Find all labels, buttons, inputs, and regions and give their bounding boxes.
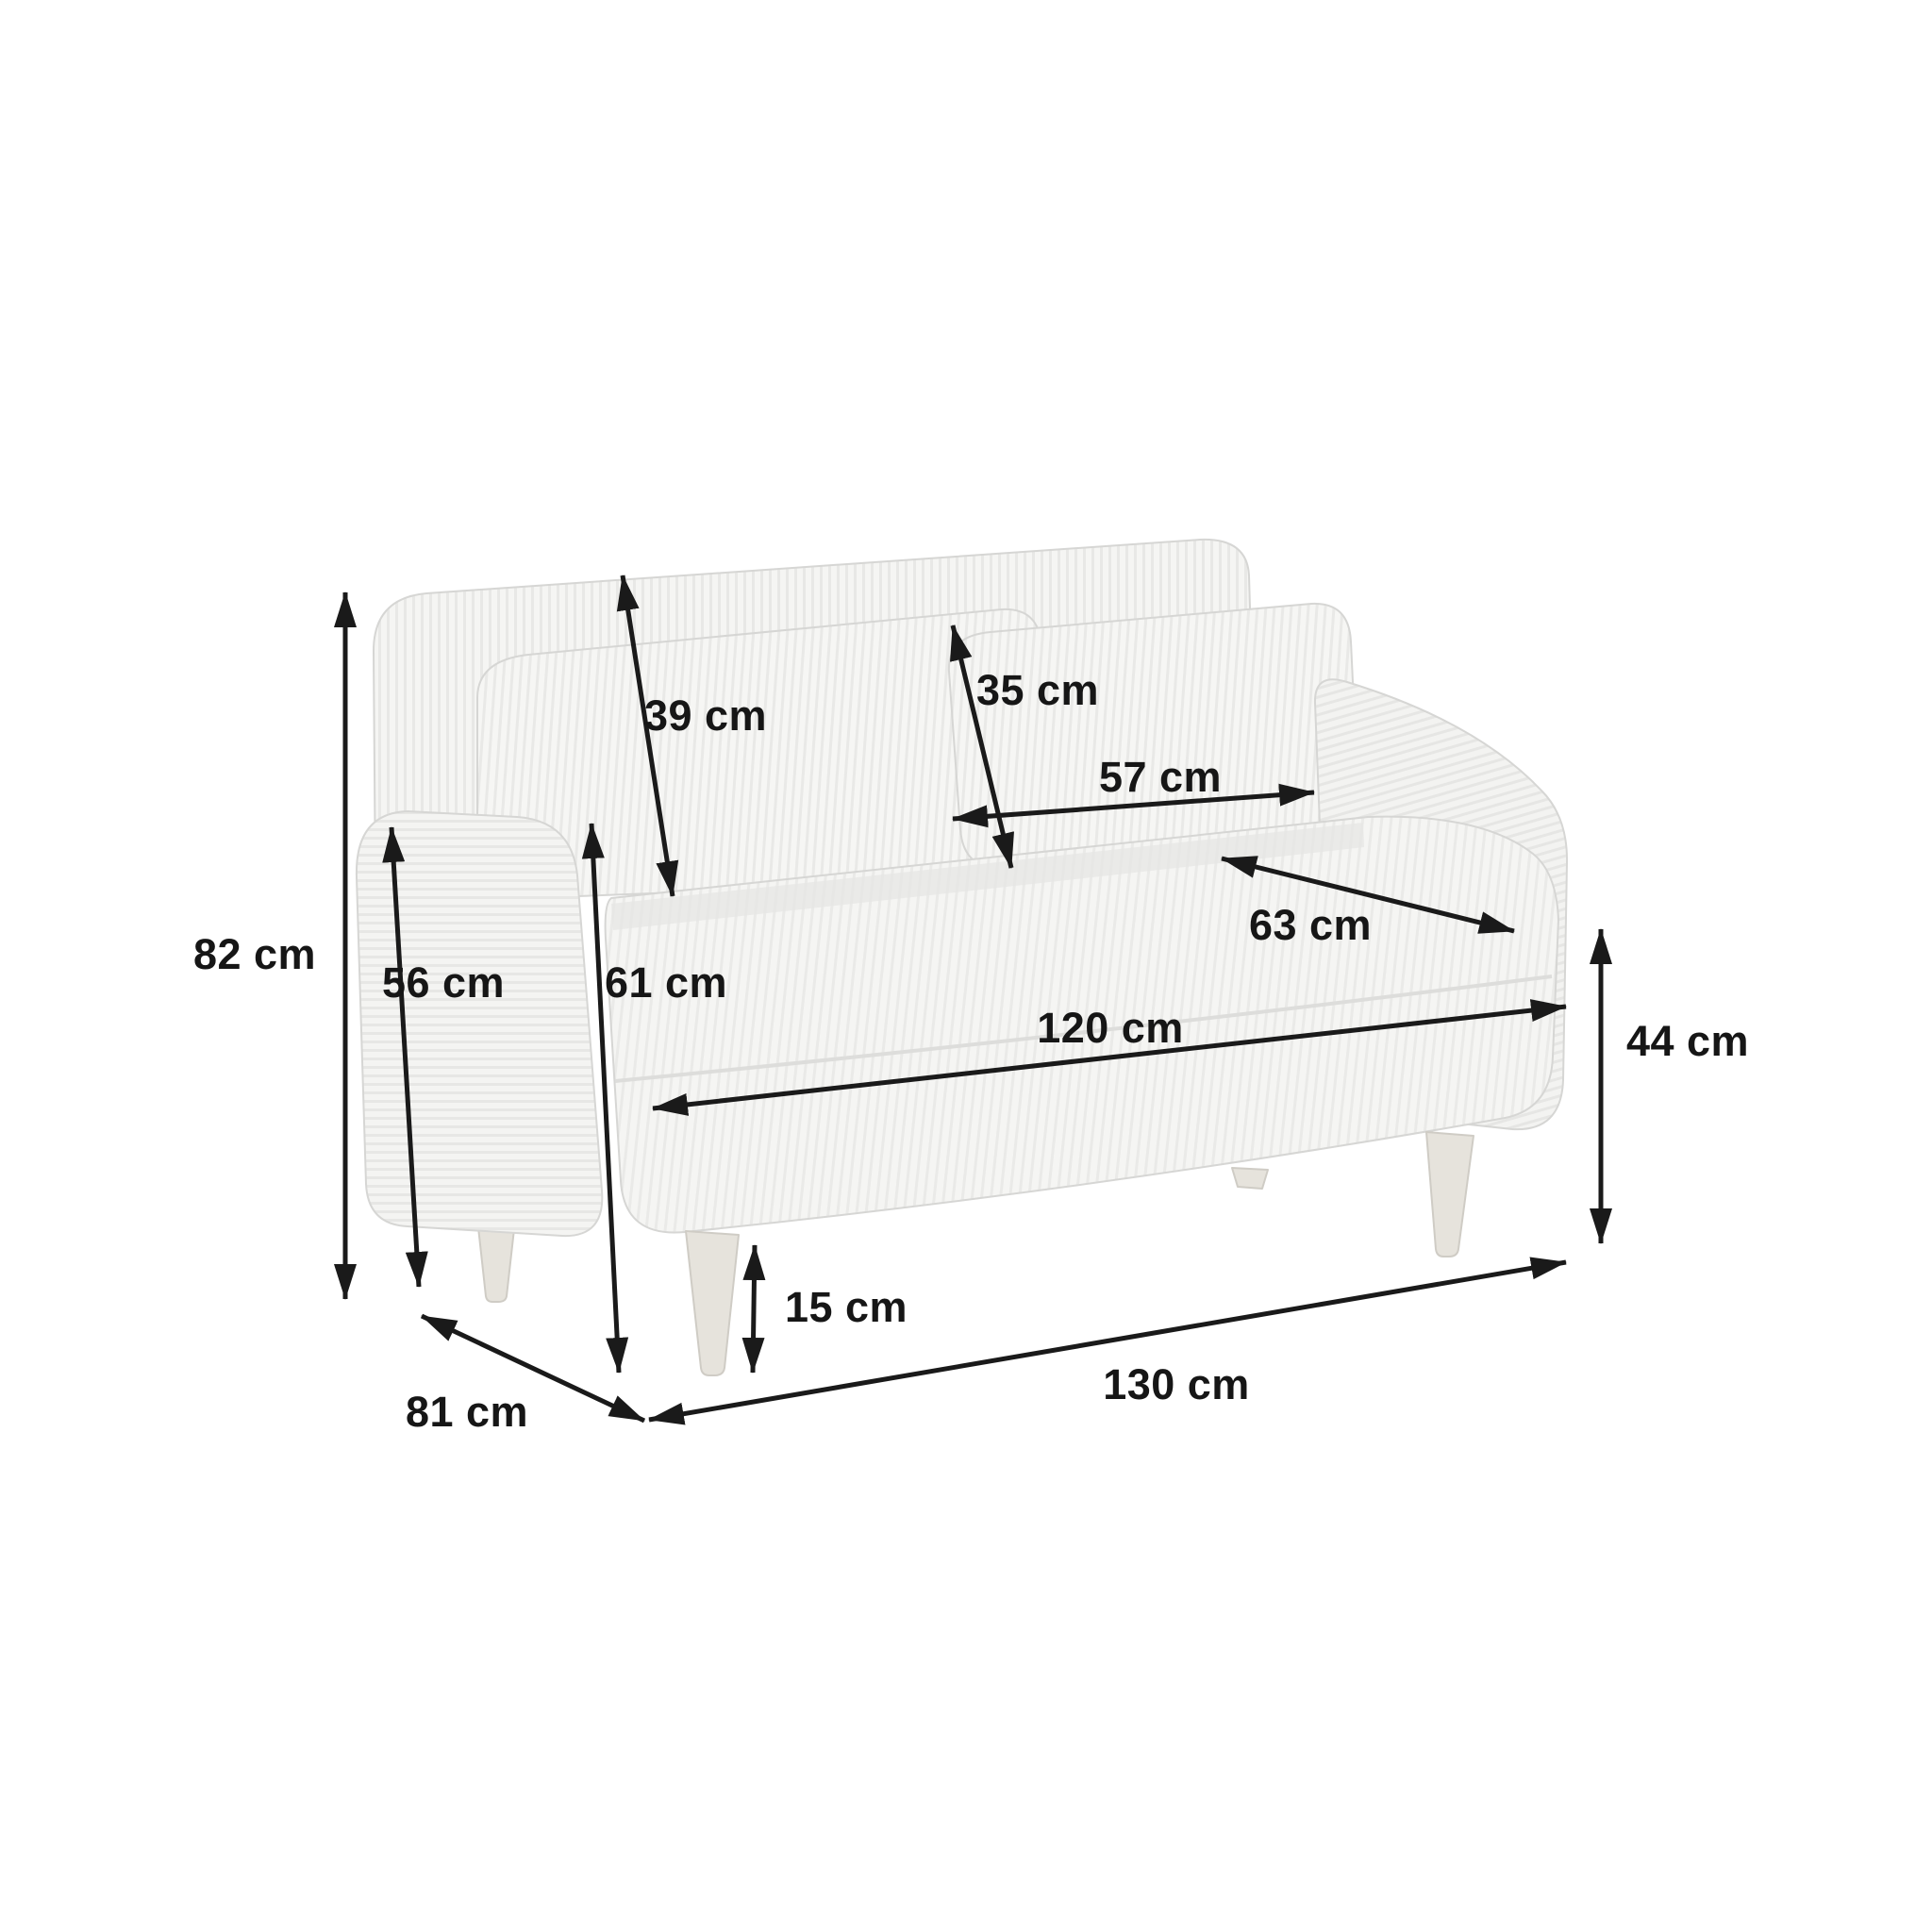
dim-label-cushion-width: 57 cm (1099, 753, 1222, 801)
dim-label-overall-depth: 81 cm (406, 1388, 528, 1436)
dim-label-leg-height: 15 cm (785, 1283, 908, 1331)
dim-label-seat-width: 120 cm (1037, 1004, 1184, 1052)
sofa-leg-front-left (686, 1231, 739, 1375)
dim-label-overall-width: 130 cm (1103, 1360, 1250, 1408)
dim-arrow-leg-height (753, 1245, 755, 1373)
dim-label-armrest-front-height: 61 cm (605, 958, 727, 1007)
dim-label-seat-height: 44 cm (1626, 1017, 1749, 1065)
dim-label-seat-depth: 63 cm (1249, 901, 1372, 949)
dimension-diagram: 82 cm 39 cm 35 cm 57 cm 63 cm 56 cm 61 c… (0, 0, 1932, 1932)
sofa-leg-back-right (1232, 1168, 1268, 1189)
sofa-leg-front-right (1426, 1132, 1474, 1257)
dim-label-armrest-height: 56 cm (382, 958, 505, 1007)
dim-label-cushion-height: 35 cm (976, 666, 1099, 714)
dim-label-overall-height: 82 cm (193, 930, 316, 978)
sofa-dimension-drawing: 82 cm 39 cm 35 cm 57 cm 63 cm 56 cm 61 c… (0, 0, 1932, 1932)
dim-label-backrest-height: 39 cm (644, 691, 767, 740)
